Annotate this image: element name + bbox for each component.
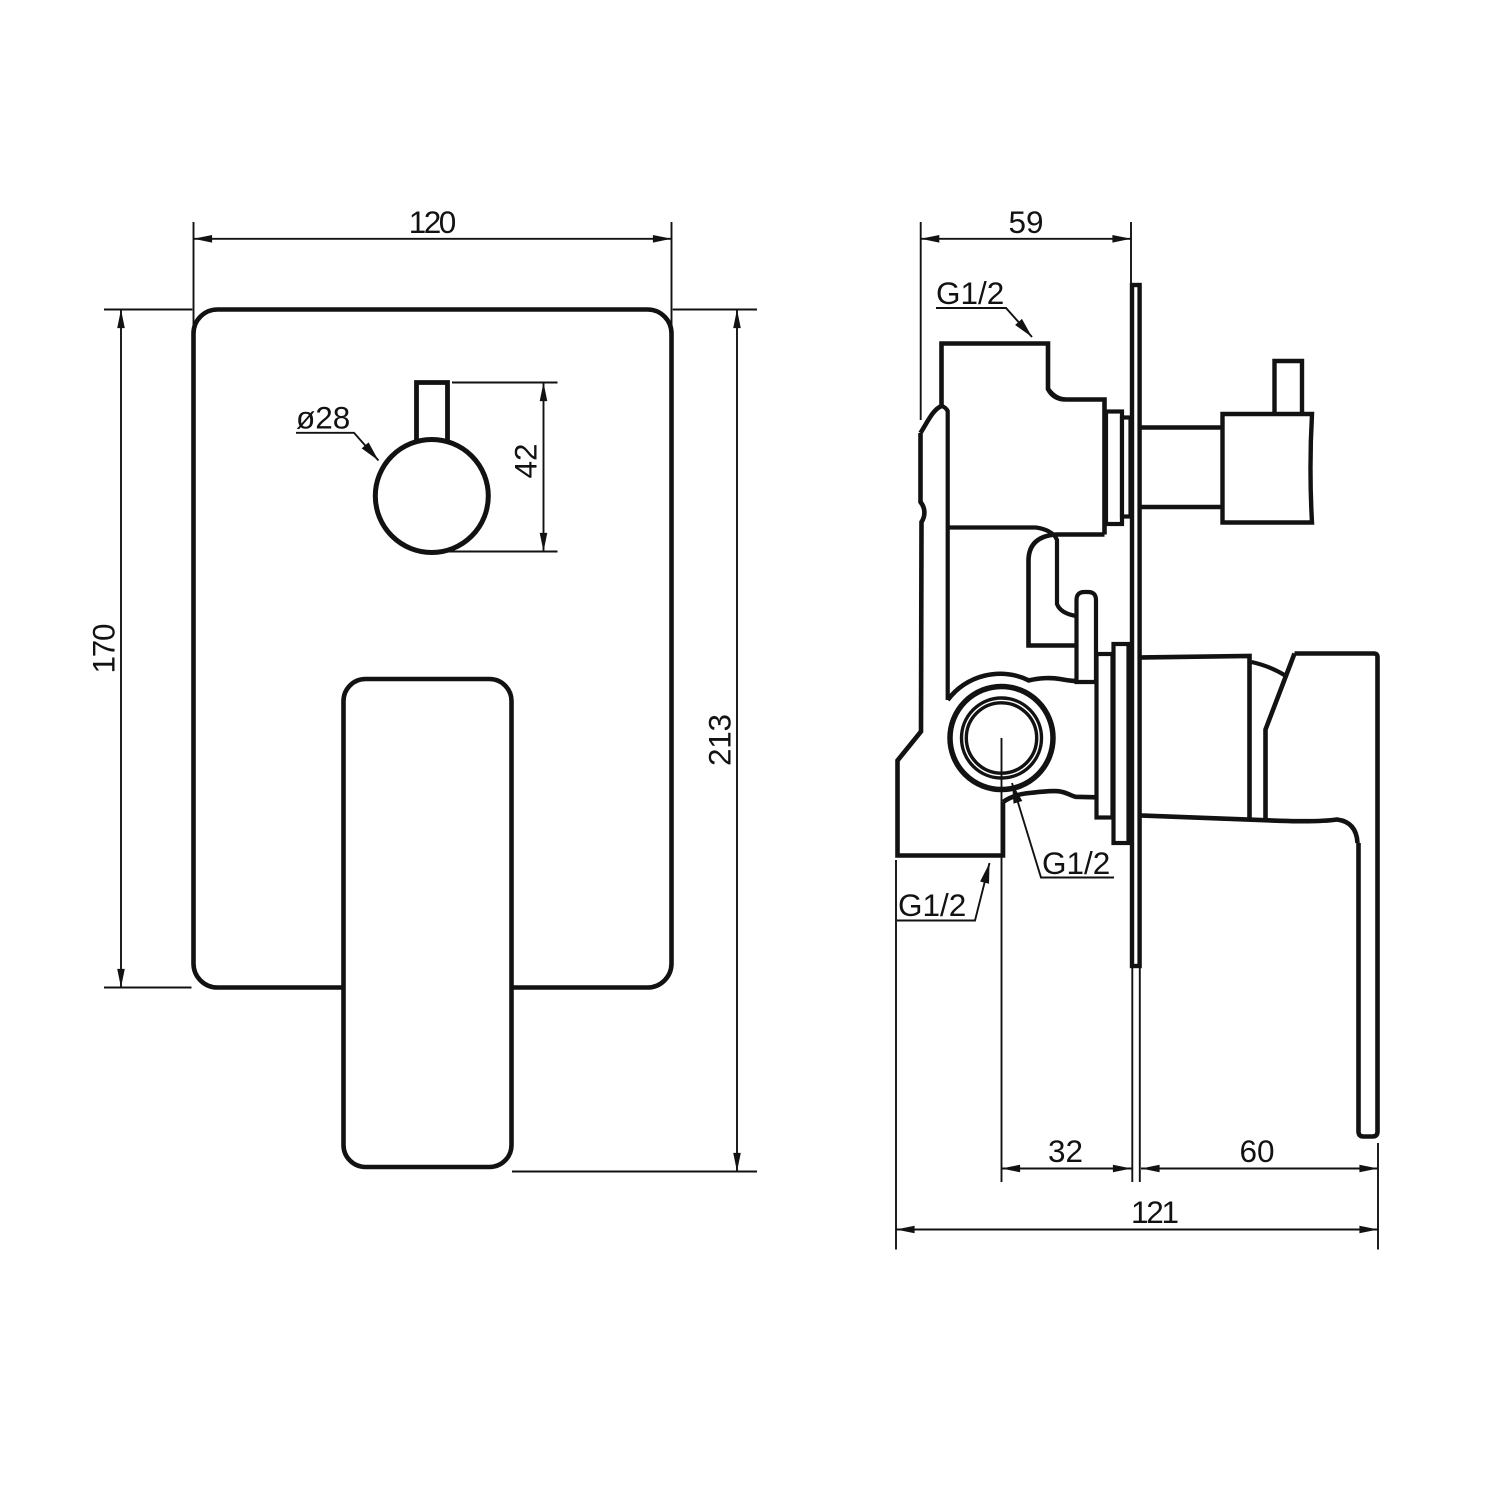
- svg-text:G1/2: G1/2: [1042, 845, 1110, 881]
- svg-text:170: 170: [86, 624, 122, 674]
- svg-text:120: 120: [409, 204, 457, 240]
- svg-text:42: 42: [508, 443, 544, 478]
- svg-text:59: 59: [1008, 204, 1043, 240]
- svg-text:60: 60: [1239, 1133, 1274, 1169]
- svg-text:G1/2: G1/2: [898, 887, 966, 923]
- svg-text:32: 32: [1048, 1133, 1083, 1169]
- svg-text:G1/2: G1/2: [936, 275, 1004, 311]
- svg-text:213: 213: [702, 714, 738, 766]
- svg-text:ø28: ø28: [296, 400, 350, 436]
- svg-text:121: 121: [1131, 1194, 1179, 1230]
